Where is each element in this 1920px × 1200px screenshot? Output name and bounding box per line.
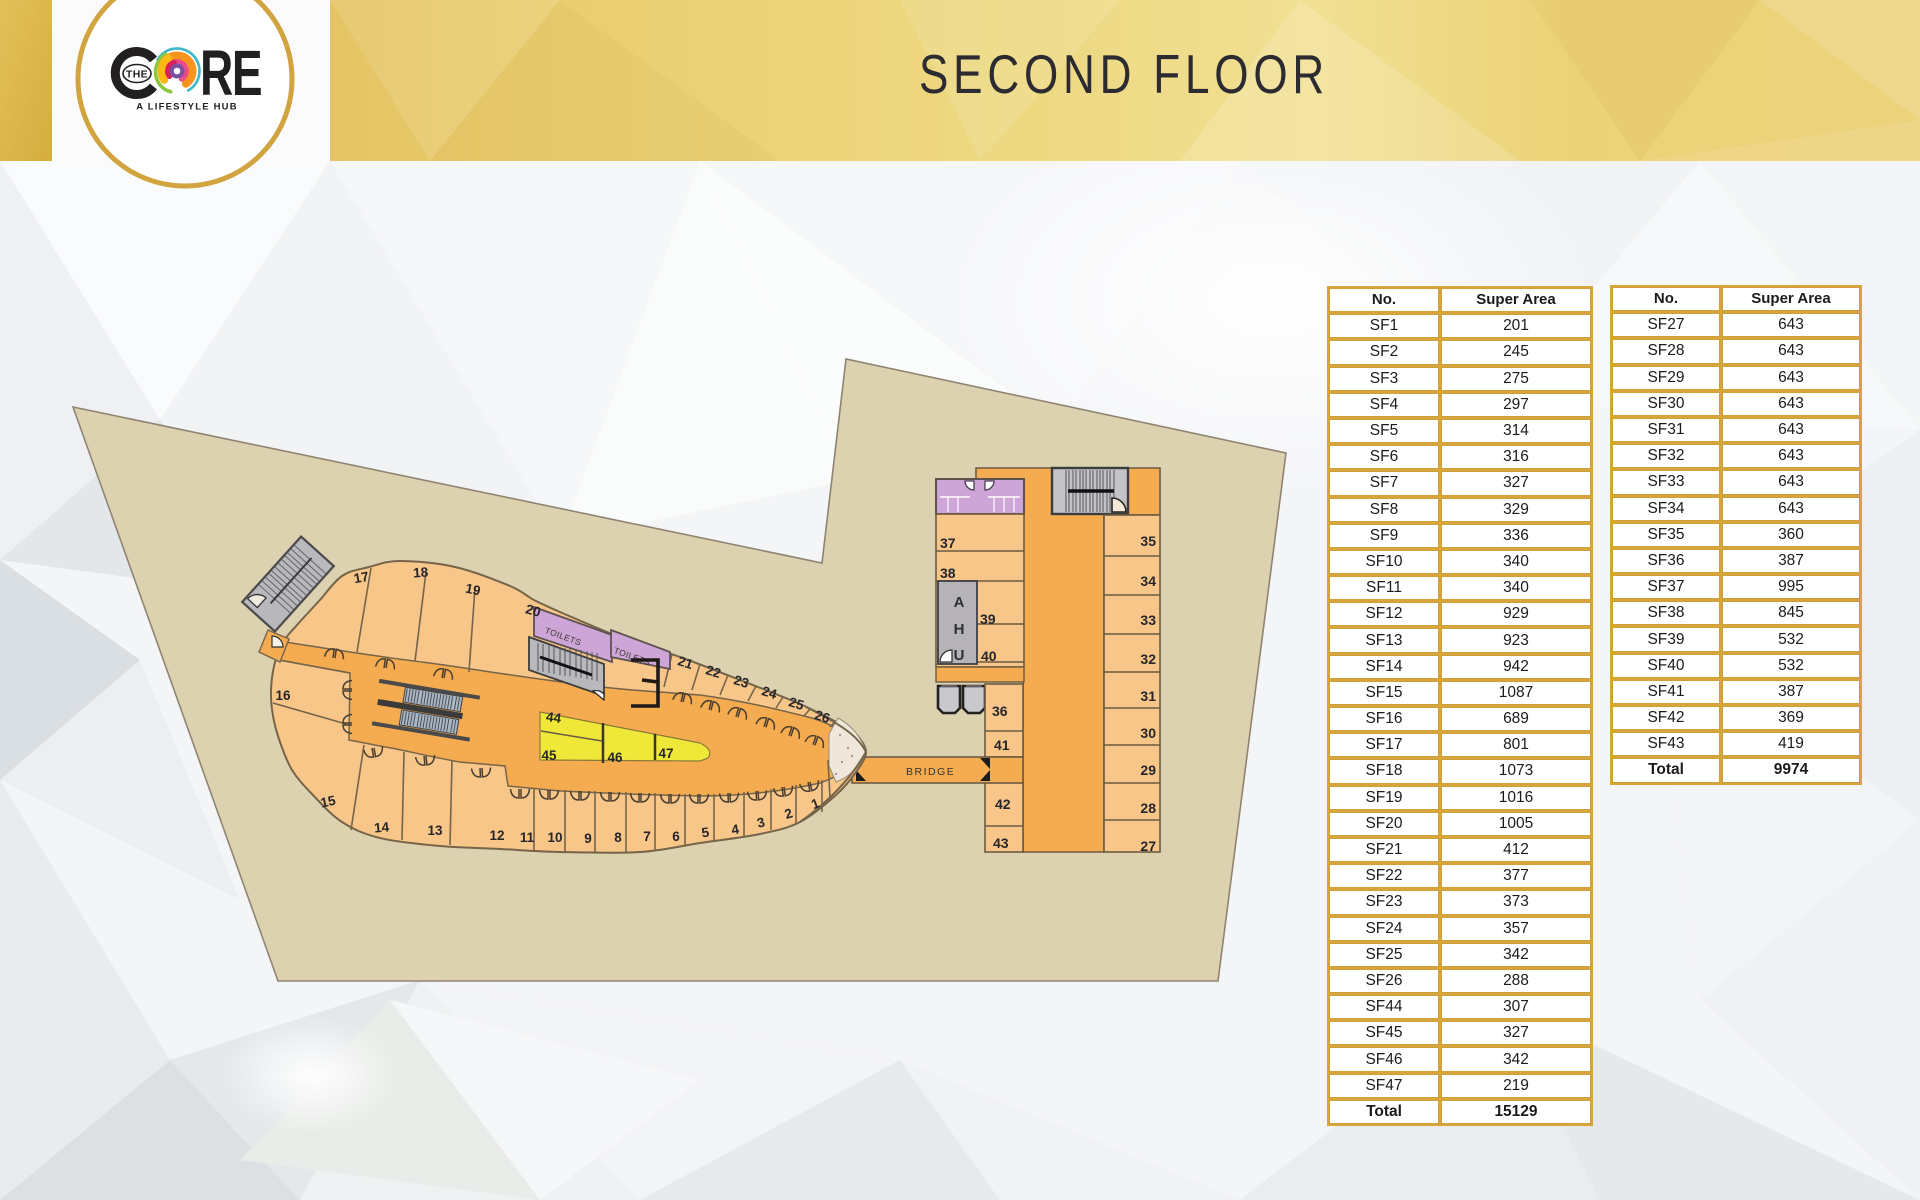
svg-text:47: 47 [658,746,673,761]
svg-text:45: 45 [541,748,557,763]
svg-text:19: 19 [464,581,482,599]
svg-text:RE: RE [200,38,261,109]
svg-text:12: 12 [489,828,504,843]
svg-text:30: 30 [1140,725,1156,741]
svg-text:H: H [954,621,965,638]
svg-text:46: 46 [607,750,623,765]
svg-text:36: 36 [992,703,1008,719]
svg-text:THE: THE [126,69,148,81]
svg-text:29: 29 [1140,762,1156,778]
svg-text:34: 34 [1140,573,1156,589]
svg-text:8: 8 [614,830,622,845]
svg-text:7: 7 [643,829,651,844]
svg-text:U: U [954,647,965,664]
svg-text:39: 39 [980,611,996,627]
svg-text:BRIDGE: BRIDGE [906,766,955,778]
svg-text:A LIFESTYLE HUB: A LIFESTYLE HUB [136,102,238,113]
svg-text:A: A [954,594,965,611]
svg-text:13: 13 [427,823,443,838]
svg-text:17: 17 [353,569,370,586]
svg-text:10: 10 [547,830,562,845]
svg-text:28: 28 [1140,800,1156,816]
svg-text:11: 11 [520,830,535,845]
svg-text:44: 44 [545,709,562,726]
svg-text:43: 43 [993,835,1009,851]
svg-text:42: 42 [995,796,1011,812]
svg-text:31: 31 [1140,688,1156,704]
svg-text:40: 40 [981,648,997,664]
svg-text:14: 14 [373,819,390,835]
svg-text:18: 18 [413,564,430,580]
svg-text:35: 35 [1140,533,1156,549]
svg-text:32: 32 [1140,651,1156,667]
svg-text:37: 37 [940,535,956,551]
svg-text:9: 9 [584,831,592,846]
svg-text:33: 33 [1140,612,1156,628]
svg-text:41: 41 [994,737,1010,753]
svg-text:16: 16 [275,688,291,703]
svg-text:6: 6 [672,829,680,844]
svg-text:SECOND FLOOR: SECOND FLOOR [919,43,1329,105]
svg-text:38: 38 [940,565,956,581]
svg-text:27: 27 [1140,838,1156,854]
